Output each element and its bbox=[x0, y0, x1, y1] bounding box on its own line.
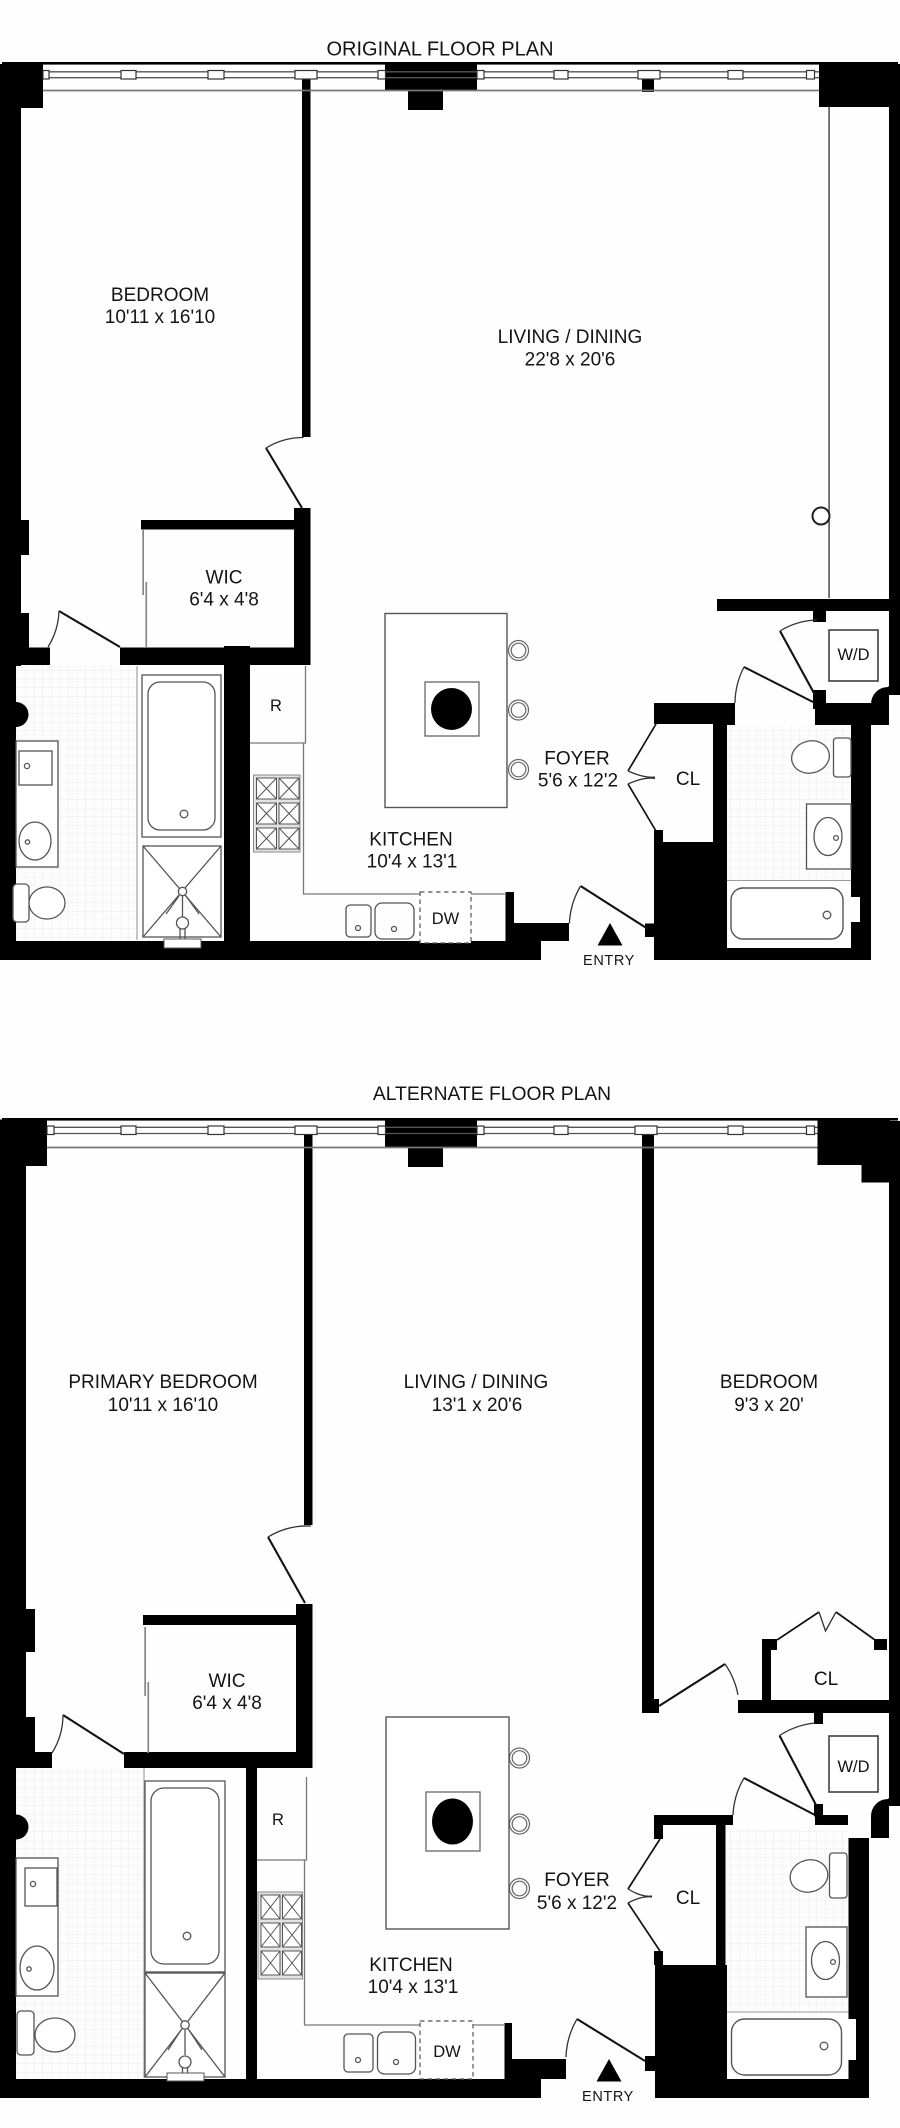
svg-text:ORIGINAL FLOOR PLAN: ORIGINAL FLOOR PLAN bbox=[326, 39, 553, 61]
svg-text:10'4 x 13'1: 10'4 x 13'1 bbox=[367, 852, 458, 873]
svg-text:6'4 x 4'8: 6'4 x 4'8 bbox=[192, 1693, 262, 1714]
svg-text:W/D: W/D bbox=[837, 646, 869, 664]
svg-text:ENTRY: ENTRY bbox=[583, 953, 635, 969]
svg-text:CL: CL bbox=[676, 769, 700, 790]
svg-text:ENTRY: ENTRY bbox=[582, 2089, 634, 2105]
svg-text:13'1 x 20'6: 13'1 x 20'6 bbox=[432, 1395, 523, 1416]
svg-text:R: R bbox=[270, 697, 282, 715]
svg-text:5'6 x 12'2: 5'6 x 12'2 bbox=[537, 1893, 617, 1914]
svg-text:9'3 x 20': 9'3 x 20' bbox=[734, 1395, 804, 1416]
svg-text:FOYER: FOYER bbox=[544, 749, 609, 770]
svg-text:10'11 x 16'10: 10'11 x 16'10 bbox=[108, 1395, 218, 1416]
svg-text:WIC: WIC bbox=[206, 568, 243, 589]
svg-text:BEDROOM: BEDROOM bbox=[720, 1372, 818, 1393]
svg-text:DW: DW bbox=[433, 2043, 461, 2061]
svg-text:10'11 x 16'10: 10'11 x 16'10 bbox=[105, 307, 215, 328]
svg-text:KITCHEN: KITCHEN bbox=[369, 1955, 452, 1976]
svg-text:22'8 x 20'6: 22'8 x 20'6 bbox=[525, 350, 616, 371]
svg-text:WIC: WIC bbox=[209, 1671, 246, 1692]
svg-text:LIVING / DINING: LIVING / DINING bbox=[498, 327, 643, 348]
svg-text:5'6 x 12'2: 5'6 x 12'2 bbox=[538, 771, 618, 792]
svg-text:ALTERNATE FLOOR PLAN: ALTERNATE FLOOR PLAN bbox=[373, 1084, 611, 1105]
svg-text:10'4 x 13'1: 10'4 x 13'1 bbox=[368, 1977, 459, 1998]
svg-text:PRIMARY BEDROOM: PRIMARY BEDROOM bbox=[68, 1372, 257, 1393]
svg-text:CL: CL bbox=[676, 1888, 700, 1909]
svg-text:KITCHEN: KITCHEN bbox=[369, 830, 452, 851]
svg-text:FOYER: FOYER bbox=[544, 1870, 609, 1891]
svg-text:CL: CL bbox=[814, 1669, 838, 1690]
svg-text:BEDROOM: BEDROOM bbox=[111, 285, 209, 306]
svg-text:LIVING / DINING: LIVING / DINING bbox=[404, 1372, 549, 1393]
svg-text:DW: DW bbox=[432, 910, 460, 928]
svg-text:W/D: W/D bbox=[837, 1758, 869, 1776]
svg-text:6'4 x 4'8: 6'4 x 4'8 bbox=[189, 590, 259, 611]
svg-text:R: R bbox=[272, 1811, 284, 1829]
